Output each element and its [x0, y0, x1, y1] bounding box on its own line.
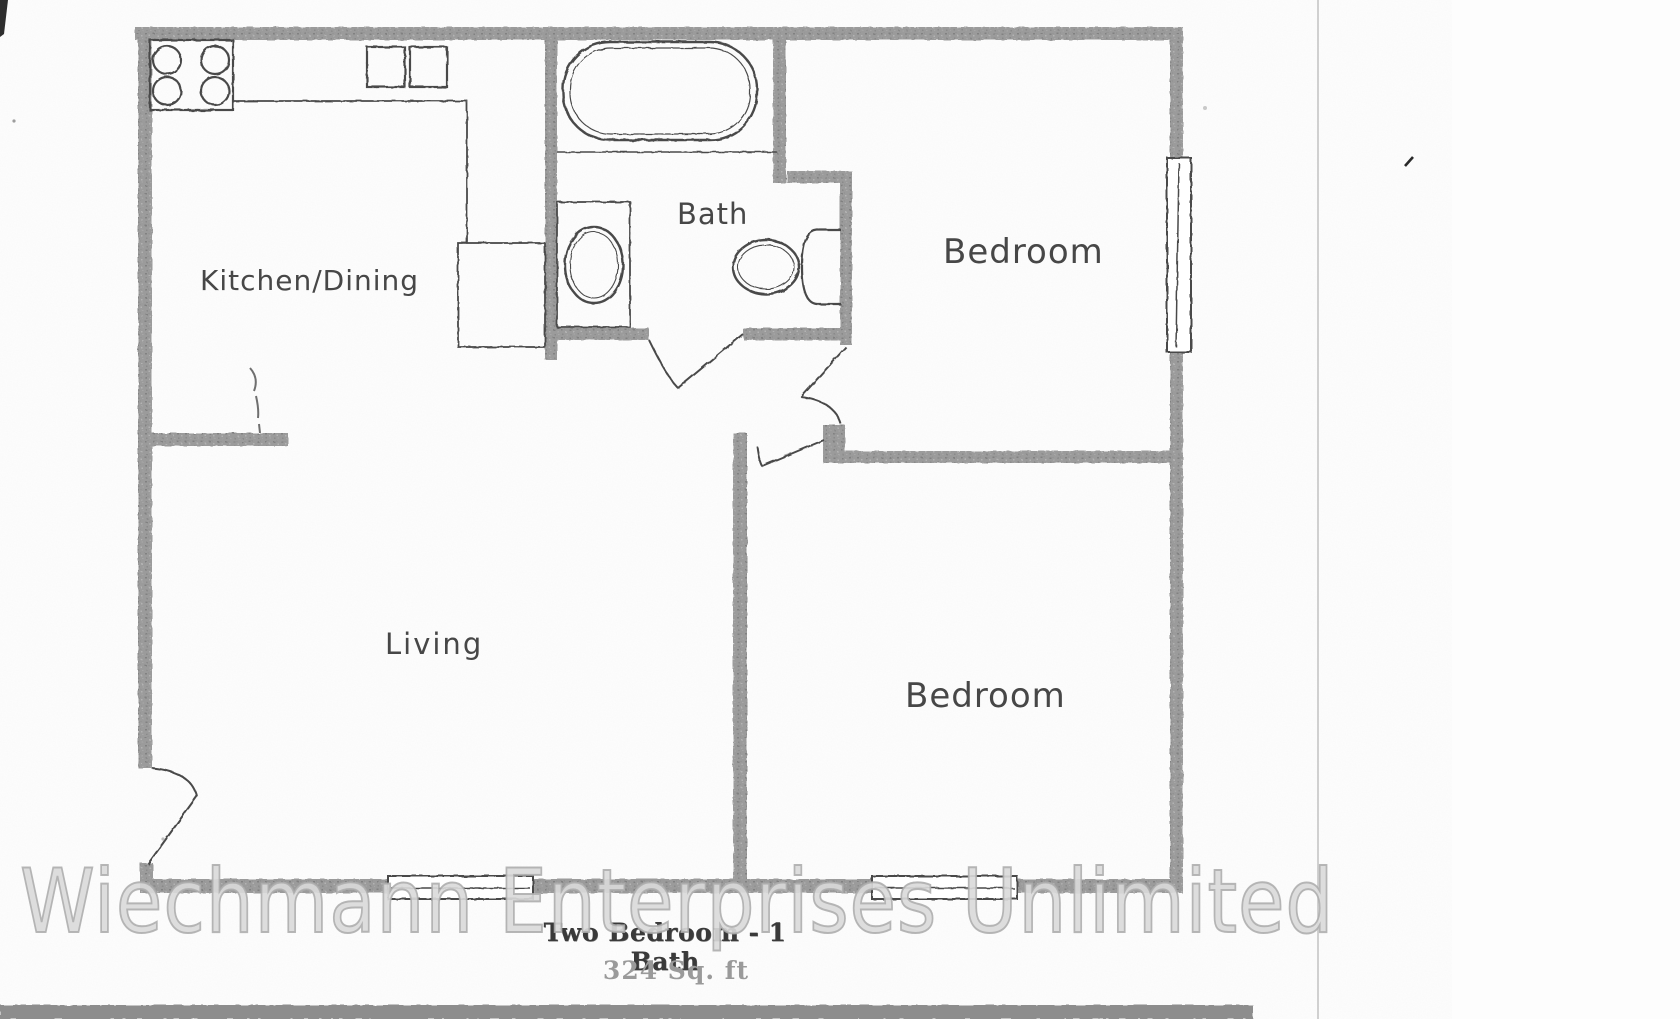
bath-wall-left: [545, 40, 557, 360]
bath-wall-tub-side: [773, 40, 786, 183]
bath-wall-right: [840, 171, 852, 345]
room-label-bath: Bath: [677, 197, 748, 231]
window-icon-right-wall: [1167, 158, 1191, 352]
stray-dash-mark: [1405, 157, 1413, 166]
room-label-living: Living: [385, 627, 483, 661]
plan-square-footage: 324 Sq. ft: [551, 956, 801, 985]
bath-wall-bottom-left: [557, 328, 649, 340]
room-label-kitchen-dining: Kitchen/Dining: [200, 264, 419, 297]
watermark-text: Wiechmann Enterprises Unlimited: [20, 850, 1334, 953]
living-bedroom-divider-wall: [733, 433, 747, 879]
speck-2: [12, 119, 15, 122]
room-label-bedroom-bottom: Bedroom: [905, 676, 1066, 716]
outer-wall-top: [135, 27, 1183, 40]
outer-wall-left: [138, 27, 152, 768]
speck-1: [1203, 106, 1207, 110]
bath-wall-bottom-right: [743, 328, 848, 340]
kitchen-living-divider-wall: [138, 433, 288, 446]
bath-wall-jog: [787, 171, 847, 183]
bedroom-divider-wall: [838, 451, 1183, 463]
speck-3: [161, 837, 164, 840]
room-label-bedroom-top: Bedroom: [943, 232, 1104, 272]
scan-edge-band: [0, 1005, 1253, 1019]
scanned-floor-plan-page: Kitchen/Dining Bath Bedroom Living Bedro…: [0, 0, 1680, 1019]
